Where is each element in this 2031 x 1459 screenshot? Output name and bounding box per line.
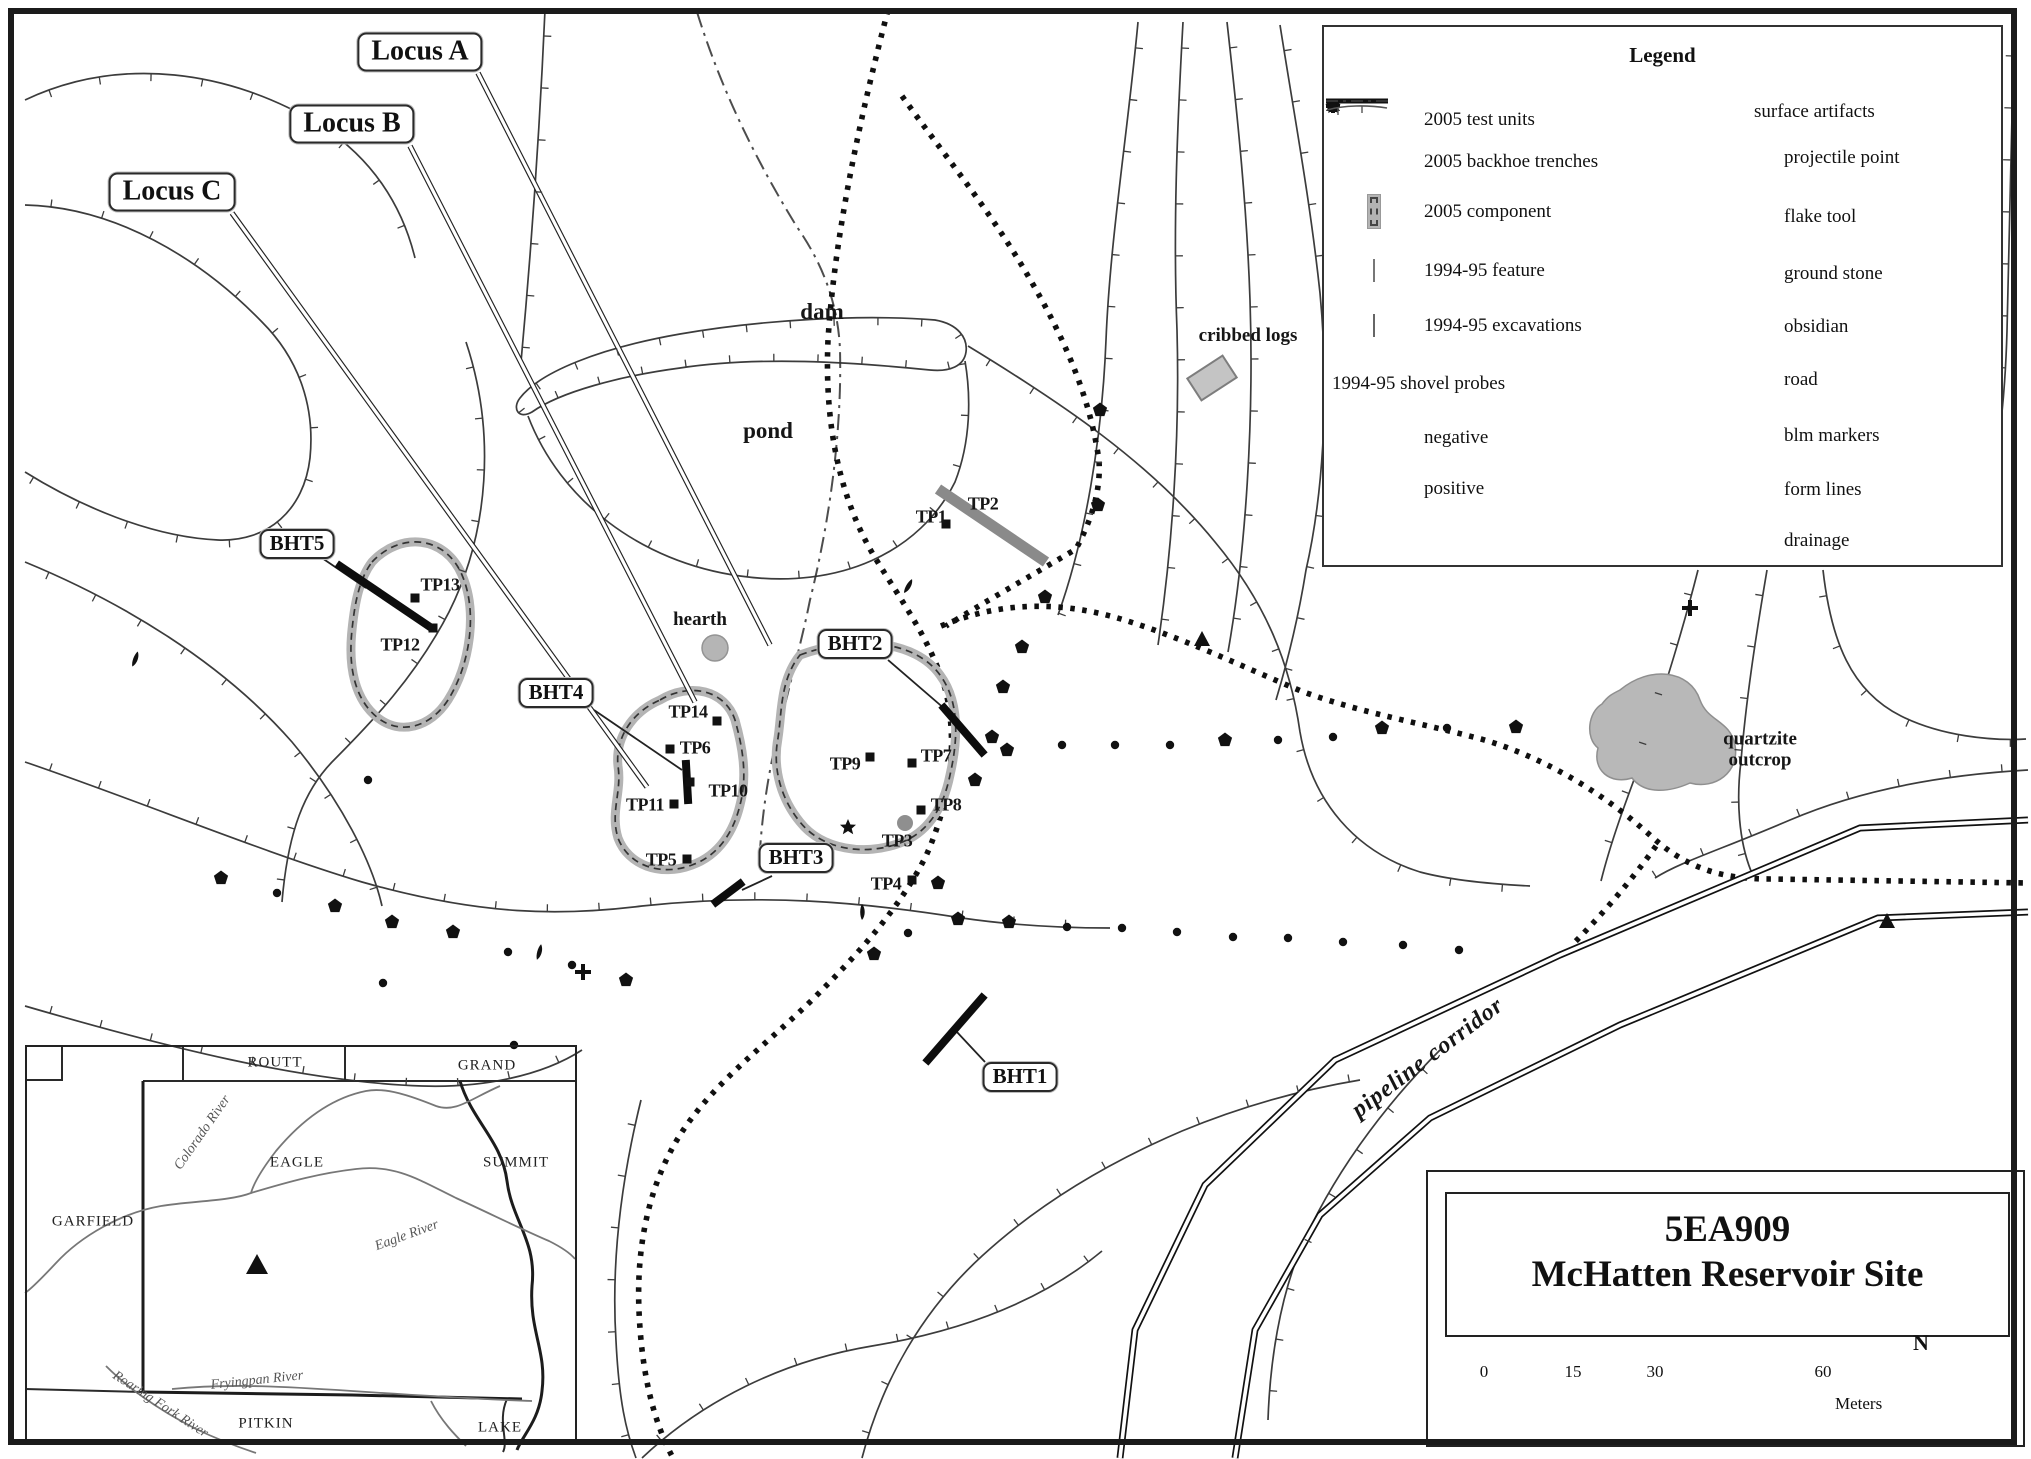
feature-icon — [1373, 260, 1375, 282]
probe-dot-marker — [1229, 933, 1237, 941]
hearth-feature — [702, 635, 728, 661]
tp9-label: TP9 — [830, 754, 861, 775]
locus-leaders — [232, 73, 770, 787]
test-unit-marker — [908, 876, 917, 885]
probe-dot-marker — [568, 961, 576, 969]
legend-item-label: obsidian — [1784, 316, 1848, 338]
legend-item-right-1: flake tool — [1694, 189, 1994, 245]
legend-item-label: flake tool — [1784, 206, 1856, 228]
legend-item-label: drainage — [1784, 530, 1849, 552]
legend-item-label: ground stone — [1784, 263, 1883, 285]
legend: Legend 2005 test units2005 backhoe trenc… — [1322, 25, 2003, 567]
legend-item-right-3: obsidian — [1694, 303, 1994, 351]
test-unit-marker — [429, 624, 438, 633]
probe-dot-marker — [1111, 741, 1119, 749]
feature-icon-cell — [1324, 260, 1424, 282]
bht4-callout: BHT4 — [519, 678, 594, 708]
tp8-label: TP8 — [931, 795, 962, 816]
probe-dot-marker — [1329, 733, 1337, 741]
bht5-callout: BHT5 — [260, 529, 335, 559]
legend-item-right-7: drainage — [1694, 517, 1994, 565]
legend-item-label: positive — [1424, 478, 1484, 500]
tp6-label: TP6 — [680, 738, 711, 759]
probe-dot-marker — [1058, 741, 1066, 749]
ground-stone-marker — [575, 964, 591, 980]
tp11-label: TP11 — [626, 795, 664, 816]
scale-tick-60: 60 — [1815, 1362, 1832, 1382]
test-unit-marker — [666, 745, 675, 754]
legend-item-left-1: 2005 backhoe trenches — [1324, 143, 1694, 181]
probe-dot-marker — [1339, 938, 1347, 946]
projectile-point-marker — [535, 944, 543, 961]
legend-title: Legend — [1324, 43, 2001, 68]
legend-item-label: 2005 test units — [1424, 109, 1535, 131]
positive-probe-marker — [328, 899, 342, 913]
excavation-icon-cell — [1324, 315, 1424, 337]
quartzite-label: quartzite outcrop — [1695, 729, 1825, 772]
county-pitkin: PITKIN — [238, 1416, 293, 1433]
test-unit-marker — [908, 759, 917, 768]
tp3-label: TP3 — [882, 831, 913, 852]
positive-probe-marker — [1218, 733, 1232, 747]
legend-item-probe-0: negative — [1324, 415, 1694, 461]
probe-dot-marker — [1173, 928, 1181, 936]
tp2-label: TP2 — [968, 494, 999, 515]
flake-tool-marker — [840, 819, 856, 834]
scale-units-label: Meters — [1835, 1394, 1882, 1414]
projectile-point-marker — [902, 578, 914, 594]
tp14-label: TP14 — [668, 702, 707, 723]
tp12-label: TP12 — [380, 635, 419, 656]
probe-dot-marker — [1063, 923, 1071, 931]
probe-dot-marker — [1455, 946, 1463, 954]
tp7-label: TP7 — [921, 746, 952, 767]
probe-dot-marker — [379, 979, 387, 987]
positive-probe-marker — [1015, 640, 1029, 654]
probe-dot-marker — [504, 948, 512, 956]
tp3-feature-marker — [897, 815, 913, 831]
bht1-callout: BHT1 — [983, 1062, 1058, 1092]
legend-item-right-6: form lines — [1694, 463, 1994, 517]
positive-probe-marker — [1038, 590, 1052, 604]
legend-item-left-2: 2005 component — [1324, 181, 1694, 243]
positive-probe-marker — [968, 773, 982, 787]
legend-item-label: 1994-95 excavations — [1424, 315, 1582, 337]
test-unit-marker — [713, 717, 722, 726]
legend-item-label: blm markers — [1784, 425, 1880, 447]
probe-dot-marker — [273, 889, 281, 897]
tp1-label: TP1 — [916, 507, 947, 528]
tp13-label: TP13 — [420, 575, 459, 596]
legend-item-right-4: road — [1694, 351, 1994, 409]
legend-item-label: form lines — [1784, 479, 1862, 501]
county-summit: SUMMIT — [483, 1155, 549, 1172]
legend-item-right-0: projectile point — [1694, 127, 1994, 189]
excavation-icon — [1373, 315, 1375, 337]
probe-dot-marker — [1443, 724, 1451, 732]
locus-a-callout: Locus A — [357, 33, 482, 72]
legend-item-label: 2005 component — [1424, 201, 1551, 223]
bht3-callout: BHT3 — [759, 843, 834, 873]
test-unit-marker — [917, 806, 926, 815]
legend-item-probe-1: positive — [1324, 461, 1694, 516]
title-panel: 5EA909 McHatten Reservoir Site — [1445, 1192, 2010, 1337]
positive-probe-marker — [985, 730, 999, 744]
legend-item-label: 1994-95 feature — [1424, 260, 1545, 282]
probe-dot-marker — [1399, 941, 1407, 949]
cribbed-logs-label: cribbed logs — [1199, 325, 1298, 347]
ground-stone-marker — [1682, 600, 1698, 616]
test-unit-marker — [683, 855, 692, 864]
test-unit-marker — [411, 594, 420, 603]
tp5-label: TP5 — [646, 850, 677, 871]
scale-tick-30: 30 — [1647, 1362, 1664, 1382]
title-block: 5EA909 McHatten Reservoir Site — [1426, 1170, 2025, 1447]
positive-probe-marker — [214, 871, 228, 885]
positive-probe-marker — [1375, 721, 1389, 735]
legend-left-column: 2005 test units2005 backhoe trenches2005… — [1324, 97, 1694, 565]
county-eagle: EAGLE — [270, 1155, 324, 1172]
component-icon — [1368, 201, 1380, 223]
inset-map — [25, 1045, 577, 1445]
legend-item-label: 2005 backhoe trenches — [1424, 151, 1598, 173]
test-unit-marker — [670, 800, 679, 809]
pond-label: pond — [743, 418, 793, 444]
probe-dot-marker — [904, 929, 912, 937]
positive-probe-marker — [931, 876, 945, 890]
tp10-label: TP10 — [708, 781, 747, 802]
probe-dot-marker — [1284, 934, 1292, 942]
positive-probe-marker — [1000, 743, 1014, 757]
dam-feature — [516, 318, 966, 415]
tp4-label: TP4 — [871, 874, 902, 895]
hearth-label: hearth — [673, 609, 727, 631]
scale-tick-15: 15 — [1565, 1362, 1582, 1382]
positive-probe-marker — [1509, 720, 1523, 734]
county-grand: GRAND — [458, 1058, 516, 1075]
probe-dot-marker — [1166, 741, 1174, 749]
locus-c-callout: Locus C — [109, 173, 236, 212]
north-label: N — [1913, 1330, 1929, 1356]
positive-probe-marker — [996, 680, 1010, 694]
locus-b-callout: Locus B — [289, 105, 414, 144]
legend-item-left-4: 1994-95 excavations — [1324, 298, 1694, 353]
positive-probe-marker — [867, 947, 881, 961]
legend-item-label: road — [1784, 369, 1818, 391]
site-name: McHatten Reservoir Site — [1447, 1253, 2008, 1296]
legend-item-left-3: 1994-95 feature — [1324, 243, 1694, 298]
test-unit-marker — [686, 778, 695, 787]
scale-tick-0: 0 — [1480, 1362, 1489, 1382]
bht2-callout: BHT2 — [818, 629, 893, 659]
probe-dot-marker — [364, 776, 372, 784]
county-lake: LAKE — [478, 1420, 522, 1437]
legend-right-column: surface artifactsprojectile pointflake t… — [1694, 97, 1994, 565]
positive-probe-marker — [385, 915, 399, 929]
dam-label: dam — [800, 299, 843, 325]
shovel-probes-heading: 1994-95 shovel probes — [1324, 353, 1694, 415]
site-number: 5EA909 — [1447, 1208, 2008, 1251]
projectile-point-marker — [131, 651, 141, 668]
surface-artifacts-heading: surface artifacts — [1694, 97, 1994, 127]
county-routt: ROUTT — [248, 1055, 303, 1072]
cribbed-logs-feature — [1187, 356, 1236, 401]
test-unit-marker — [866, 753, 875, 762]
blm-marker — [1194, 631, 1210, 646]
probe-dot-marker — [1118, 924, 1126, 932]
component-icon-cell — [1324, 201, 1424, 223]
probe-dot-marker — [1274, 736, 1282, 744]
site-map-figure: dampondhearthcribbed logsquartzite outcr… — [0, 0, 2031, 1459]
county-garfield: GARFIELD — [52, 1214, 134, 1231]
legend-item-label: negative — [1424, 427, 1488, 449]
legend-item-right-5: blm markers — [1694, 409, 1994, 463]
legend-item-label: projectile point — [1784, 147, 1900, 169]
legend-item-right-2: ground stone — [1694, 245, 1994, 303]
positive-probe-marker — [619, 973, 633, 987]
projectile-point-marker — [860, 904, 865, 920]
positive-probe-marker — [1093, 403, 1107, 417]
positive-probe-marker — [446, 925, 460, 939]
